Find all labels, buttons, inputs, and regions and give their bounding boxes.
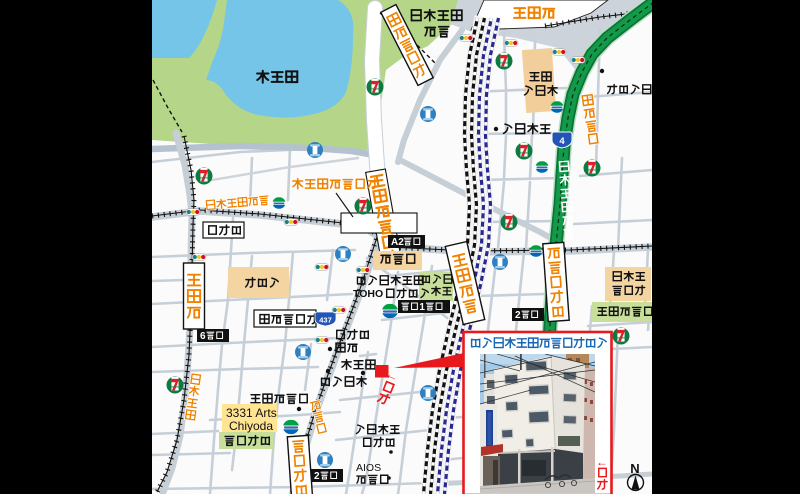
svg-text:A2: A2 <box>391 237 404 248</box>
svg-text:437: 437 <box>319 316 332 325</box>
svg-text:4: 4 <box>559 136 565 147</box>
svg-text:2: 2 <box>314 471 320 482</box>
svg-text:TOHO: TOHO <box>353 288 383 300</box>
svg-text:2: 2 <box>515 310 521 321</box>
svg-text:3331 Arts: 3331 Arts <box>226 406 277 420</box>
svg-text:1: 1 <box>419 302 425 313</box>
svg-text:N: N <box>630 461 639 476</box>
svg-text:Chiyoda: Chiyoda <box>229 419 273 433</box>
svg-text:6: 6 <box>200 331 206 342</box>
svg-text:←: ← <box>596 455 608 469</box>
svg-text:AIOS: AIOS <box>356 462 381 474</box>
